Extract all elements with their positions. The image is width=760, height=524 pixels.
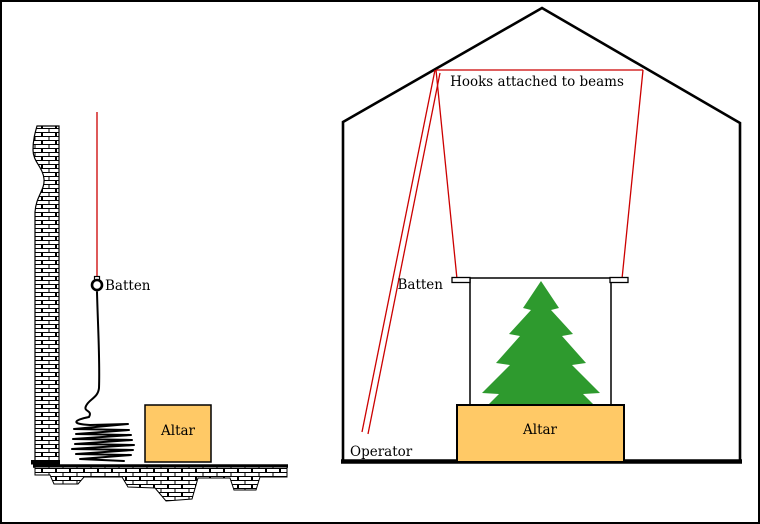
altar-front-label: Altar (522, 422, 558, 438)
rigging-diagram-canvas: Altar Batten Hooks attached to beams Ba (0, 0, 760, 524)
batten-front-label: Batten (397, 277, 443, 293)
rope-coil (72, 292, 134, 461)
brick-floor (35, 467, 287, 501)
rope-to-operator-1 (362, 70, 435, 432)
batten-end-icon (92, 280, 102, 290)
batten-end-left (452, 278, 470, 283)
diagram-svg: Altar Batten Hooks attached to beams Ba (0, 0, 760, 524)
hooks-label: Hooks attached to beams (450, 74, 624, 90)
wall-base-bar (31, 460, 60, 465)
rope-to-batten-left (436, 70, 457, 279)
rope-to-batten-right (622, 70, 643, 279)
side-view: Altar Batten (31, 112, 288, 501)
altar-side-label: Altar (160, 423, 196, 439)
batten-side-label: Batten (105, 278, 151, 294)
operator-label: Operator (350, 444, 413, 460)
front-view: Hooks attached to beams Batten Altar Ope… (341, 8, 742, 462)
rope-to-operator-2 (368, 73, 440, 434)
batten-end-right (610, 278, 628, 283)
brick-wall (33, 126, 59, 461)
